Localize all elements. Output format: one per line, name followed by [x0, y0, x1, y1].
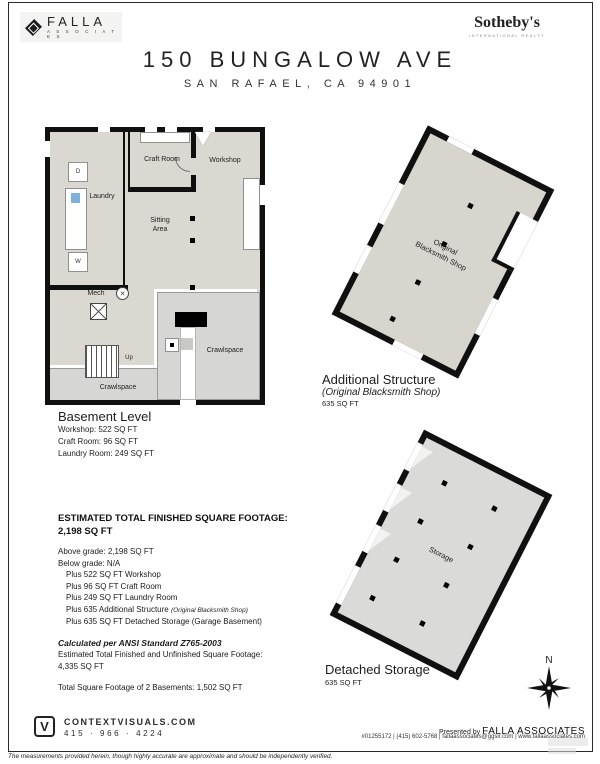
wall — [128, 132, 130, 190]
summary-heading-line2: 2,198 SQ FT — [58, 525, 318, 538]
wall — [260, 127, 265, 405]
room-label-craft: Craft Room — [132, 156, 192, 165]
additional-structure-subtitle: (Original Blacksmith Shop) — [322, 387, 440, 398]
additional-structure-area: 635 SQ FT — [322, 399, 440, 408]
falla-logo-name: FALLA — [47, 15, 122, 28]
contextvisuals-logo-letter: V — [40, 719, 49, 734]
falla-diamond-icon — [25, 19, 42, 36]
wall — [45, 400, 265, 405]
basement-floor-plan: D W ✕ Mech Up Laundry Craft Room Worksho… — [45, 127, 265, 405]
post — [190, 238, 195, 243]
basement-caption-line: Craft Room: 96 SQ FT — [58, 436, 154, 448]
detached-storage-caption: Detached Storage 635 SQ FT — [325, 662, 430, 687]
post — [170, 343, 174, 347]
falla-associates-logo: FALLA A S S O C I A T E S — [20, 12, 122, 42]
basement-caption-line: Workshop: 522 SQ FT — [58, 424, 154, 436]
wall — [191, 175, 196, 192]
dryer: D — [68, 162, 88, 182]
compass-rose: N — [524, 655, 574, 725]
contextvisuals-logo: V — [34, 716, 55, 737]
window — [98, 127, 110, 132]
room-label-mech: Mech — [79, 290, 113, 299]
stairs — [85, 345, 119, 378]
room-label-laundry: Laundry — [72, 193, 132, 202]
square-footage-summary: ESTIMATED TOTAL FINISHED SQUARE FOOTAGE:… — [58, 512, 318, 694]
post — [190, 216, 195, 221]
room-label-sitting-line1: Sitting — [130, 217, 190, 226]
summary-line: Plus 635 SQ FT Detached Storage (Garage … — [58, 616, 318, 628]
door-opening — [45, 141, 50, 157]
post-footing — [181, 338, 193, 350]
chimney — [175, 312, 207, 327]
workbench — [243, 178, 260, 250]
door-opening — [180, 400, 196, 405]
agent-contact-line: #01255172 | (415) 602-5768 | fallaassoci… — [260, 734, 585, 740]
closet — [140, 132, 190, 143]
additional-structure-caption: Additional Structure (Original Blacksmit… — [322, 372, 440, 408]
wall — [123, 132, 125, 285]
stairs-up-label: Up — [119, 355, 139, 363]
summary-ansi-note: Calculated per ANSI Standard Z765-2003 — [58, 638, 318, 650]
basement-caption: Basement Level Workshop: 522 SQ FT Craft… — [58, 409, 154, 460]
washer: W — [68, 252, 88, 272]
post-footing — [165, 338, 179, 352]
disclaimer-text: The measurements provided herein, though… — [8, 753, 332, 760]
door-swing — [195, 132, 211, 146]
detached-storage-area: 635 SQ FT — [325, 678, 430, 687]
room-label-sitting: Sitting Area — [130, 217, 190, 235]
falla-logo-subtitle: A S S O C I A T E S — [47, 30, 122, 39]
summary-line-note: (Original Blacksmith Shop) — [171, 607, 248, 614]
page-subtitle: SAN RAFAEL, CA 94901 — [0, 78, 600, 90]
sothebys-logo-name: Sotheby's — [469, 15, 545, 31]
summary-line-text: Plus 635 Additional Structure — [66, 605, 171, 614]
window — [260, 185, 265, 205]
basement-caption-line: Laundry Room: 249 SQ FT — [58, 448, 154, 460]
mechanical-equipment-icon — [90, 303, 107, 320]
summary-line: Below grade: N/A — [58, 558, 318, 570]
watermark — [548, 748, 576, 754]
compass-star-icon — [527, 666, 571, 710]
summary-line: Plus 522 SQ FT Workshop — [58, 569, 318, 581]
sothebys-logo: Sotheby's INTERNATIONAL REALTY — [469, 15, 545, 38]
watermark — [548, 738, 588, 746]
summary-total-line1: Estimated Total Finished and Unfinished … — [58, 649, 318, 661]
summary-line: Plus 249 SQ FT Laundry Room — [58, 592, 318, 604]
water-heater-icon: ✕ — [116, 287, 129, 300]
post — [190, 285, 195, 290]
compass-north-label: N — [524, 655, 574, 666]
summary-line: Plus 635 Additional Structure (Original … — [58, 604, 318, 617]
falla-diamond-icon-inner — [28, 21, 39, 32]
summary-total-line2: 4,335 SQ FT — [58, 661, 318, 673]
room-label-workshop: Workshop — [195, 157, 255, 166]
summary-heading-line1: ESTIMATED TOTAL FINISHED SQUARE FOOTAGE: — [58, 512, 318, 525]
page-title: 150 BUNGALOW AVE — [0, 47, 600, 73]
contextvisuals-site: CONTEXTVISUALS.COM — [64, 717, 197, 727]
wall — [45, 127, 50, 405]
summary-line: Above grade: 2,198 SQ FT — [58, 546, 318, 558]
sothebys-logo-subtitle: INTERNATIONAL REALTY — [469, 34, 545, 38]
summary-line: Plus 96 SQ FT Craft Room — [58, 581, 318, 593]
summary-basements-total: Total Square Footage of 2 Basements: 1,5… — [58, 682, 318, 694]
additional-structure-title: Additional Structure — [322, 372, 440, 387]
contextvisuals-phone: 415 · 966 · 4224 — [64, 729, 164, 738]
basement-caption-title: Basement Level — [58, 409, 154, 424]
room-label-crawlspace-left: Crawlspace — [88, 384, 148, 393]
room-label-crawlspace-right: Crawlspace — [195, 347, 255, 356]
room-label-sitting-line2: Area — [130, 226, 190, 235]
detached-storage-title: Detached Storage — [325, 662, 430, 677]
wall — [128, 187, 196, 192]
